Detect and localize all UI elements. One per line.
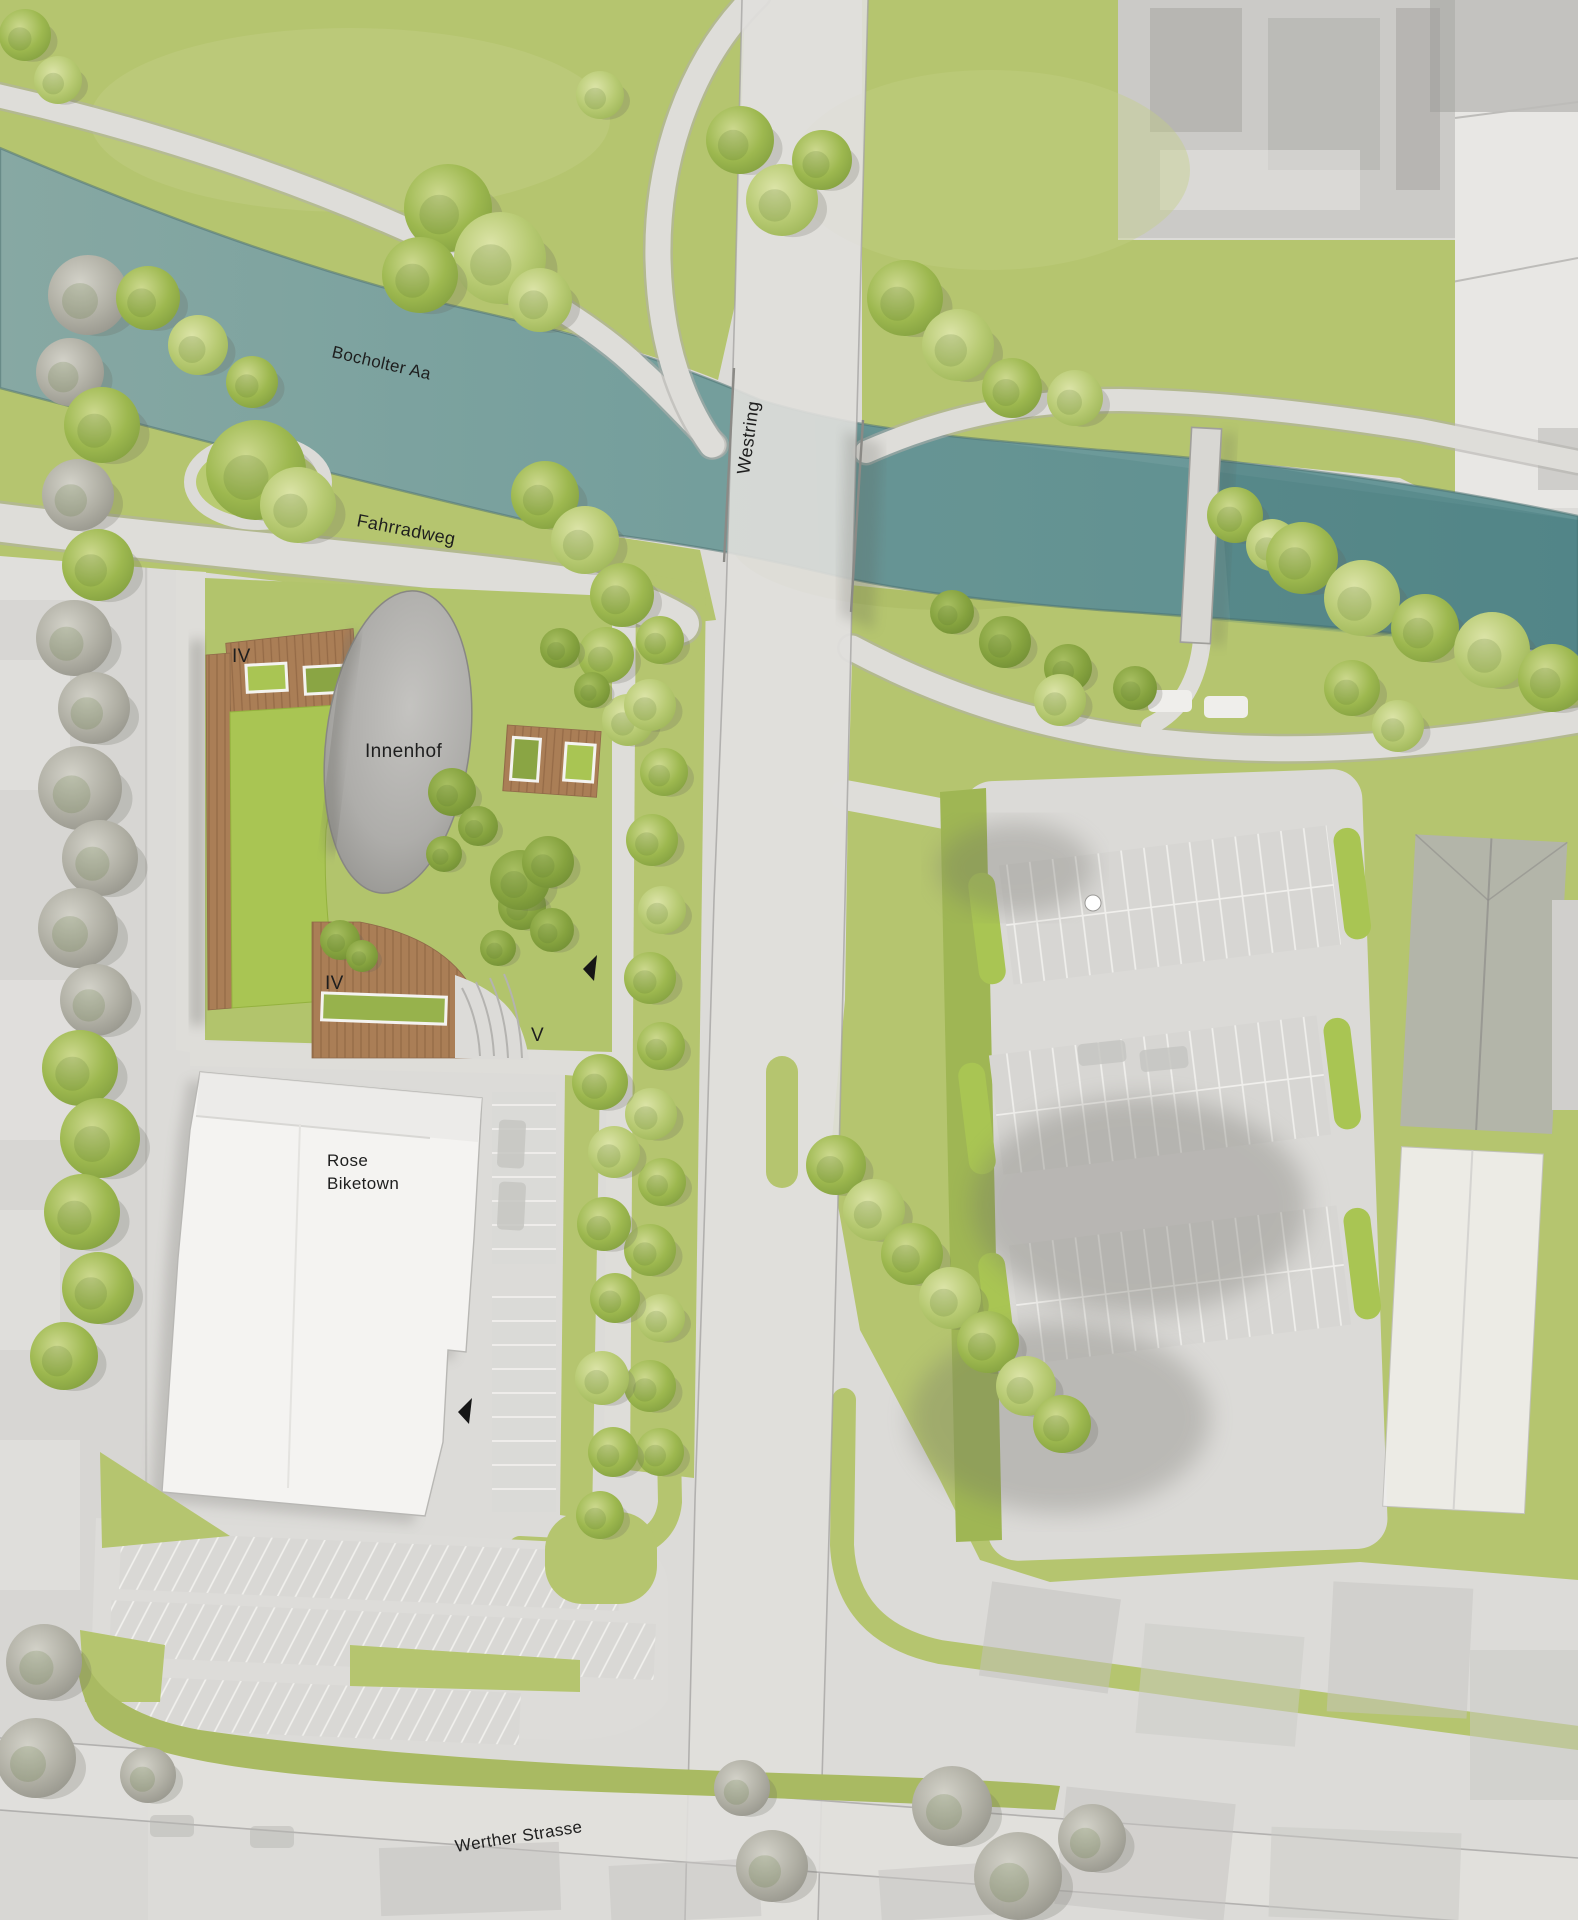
store-label-line2: Biketown [327,1174,399,1193]
site-plan-drawing: Bocholter Aa Westring Fahrradweg Innenho… [0,0,1578,1920]
car-icon [1204,696,1248,718]
east-terrace [503,725,601,797]
floors-label-south: IV [325,973,344,994]
lamp-icon [1085,895,1101,911]
store-label-line1: Rose [327,1151,368,1170]
west-wood-walk [206,653,232,1010]
floors-label-corner: V [531,1025,544,1046]
courtyard-label: Innenhof [365,741,442,762]
site-plan: Bocholter Aa Westring Fahrradweg Innenho… [0,0,1578,1920]
car-icon [497,1181,526,1230]
road-median-island [766,1056,798,1188]
rose-parking-column [492,1092,556,1512]
floors-label-north: IV [232,646,251,667]
right-parking-lot [910,690,1388,1562]
car-icon [497,1119,526,1168]
rose-biketown-building [150,1072,556,1524]
